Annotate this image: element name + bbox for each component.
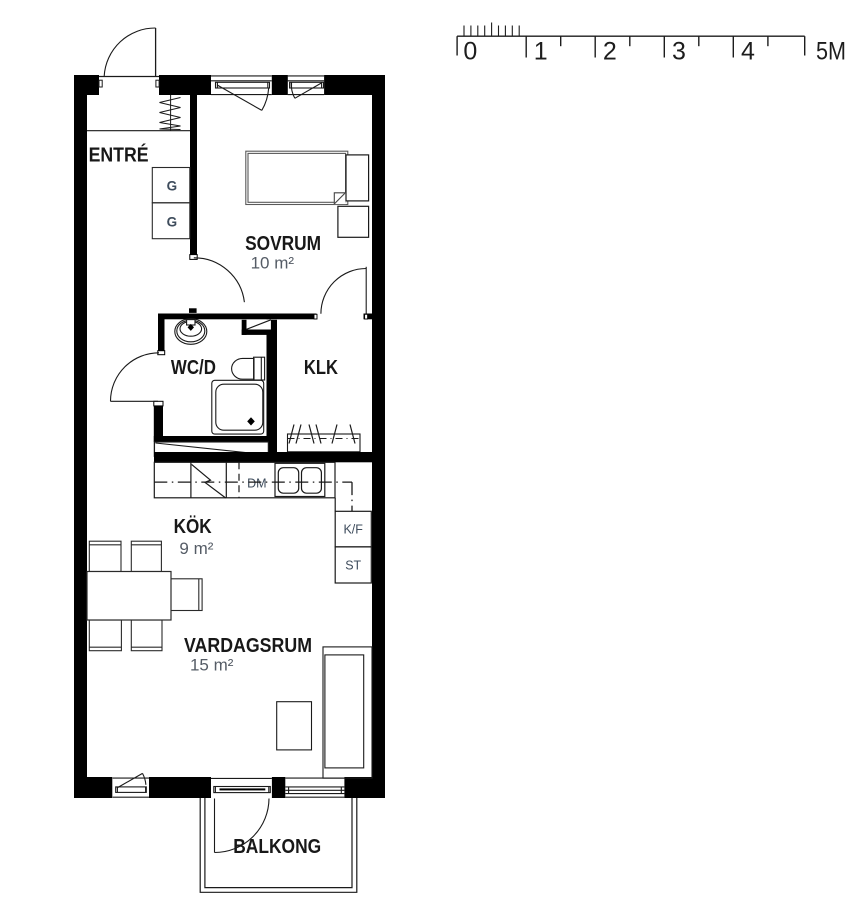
svg-text:2: 2 bbox=[603, 38, 617, 66]
svg-text:WC/D: WC/D bbox=[171, 357, 216, 379]
svg-text:0: 0 bbox=[463, 38, 477, 66]
svg-text:DM: DM bbox=[247, 477, 266, 491]
svg-text:ST: ST bbox=[345, 559, 361, 573]
svg-text:G: G bbox=[167, 215, 178, 230]
svg-text:BALKONG: BALKONG bbox=[233, 836, 321, 858]
svg-text:SOVRUM: SOVRUM bbox=[245, 233, 321, 255]
svg-text:5M: 5M bbox=[816, 38, 846, 66]
svg-text:1: 1 bbox=[534, 38, 548, 66]
svg-text:ENTRÉ: ENTRÉ bbox=[89, 144, 149, 167]
svg-text:3: 3 bbox=[672, 38, 686, 66]
svg-text:9 m²: 9 m² bbox=[179, 539, 213, 558]
svg-text:15 m²: 15 m² bbox=[190, 655, 234, 674]
svg-text:G: G bbox=[167, 179, 178, 194]
svg-text:K/F: K/F bbox=[343, 523, 363, 537]
svg-text:10 m²: 10 m² bbox=[251, 253, 295, 272]
svg-text:VARDAGSRUM: VARDAGSRUM bbox=[184, 635, 312, 657]
svg-text:4: 4 bbox=[741, 38, 755, 66]
svg-text:KLK: KLK bbox=[304, 357, 338, 379]
svg-text:KÖK: KÖK bbox=[174, 515, 212, 538]
